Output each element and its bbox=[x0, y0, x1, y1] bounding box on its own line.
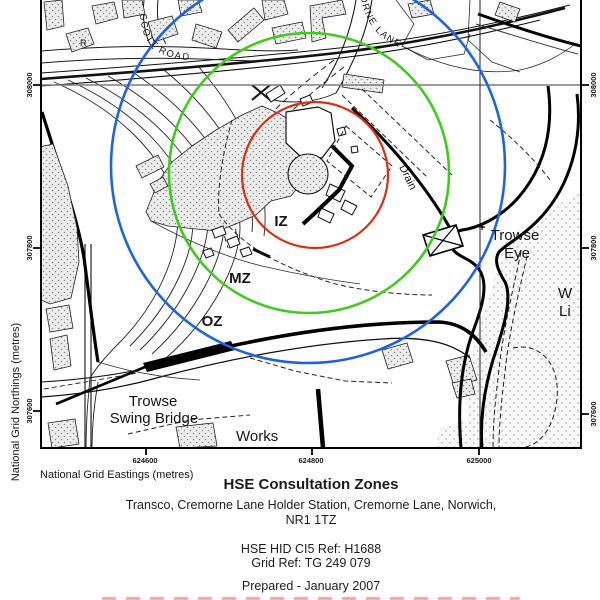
x-tick-624600: 624600 bbox=[132, 456, 157, 465]
li-label: Li bbox=[559, 303, 571, 320]
swing-bridge-label-1: Trowse bbox=[129, 393, 178, 410]
swing-bridge-label-2: Swing Bridge bbox=[110, 410, 198, 427]
gas-holder bbox=[288, 154, 328, 194]
oz-label: OZ bbox=[202, 313, 223, 330]
x-tick-625000: 625000 bbox=[466, 456, 491, 465]
y-tick-307600-left: 307600 bbox=[25, 398, 34, 423]
hse-reference: HSE HID CI5 Ref: H1688 bbox=[11, 542, 600, 556]
r-label: R bbox=[80, 38, 87, 48]
trowse-eye-label-1: Trowse bbox=[491, 227, 540, 244]
page-title: HSE Consultation Zones bbox=[11, 476, 600, 493]
w-label: W bbox=[558, 285, 573, 302]
y-tick-308000-left: 308000 bbox=[25, 72, 34, 97]
works-label: Works bbox=[236, 428, 278, 445]
y-axis-label: National Grid Northings (metres) bbox=[10, 323, 22, 481]
map-content bbox=[35, 0, 581, 448]
y-tick-308000-right: 308000 bbox=[589, 72, 598, 97]
iz-label: IZ bbox=[274, 213, 287, 230]
y-tick-307800-left: 307800 bbox=[25, 235, 34, 260]
y-tick-307800-right: 307800 bbox=[589, 235, 598, 260]
y-tick-307600-right: 307600 bbox=[589, 401, 598, 426]
prepared-date: Prepared - January 2007 bbox=[11, 579, 600, 593]
trowse-eye-label-2: Eye bbox=[504, 245, 530, 262]
x-tick-624800: 624800 bbox=[298, 456, 323, 465]
hse-consultation-zones-page: 308000 307800 307600 308000 307800 30760… bbox=[0, 0, 600, 600]
site-address-line-2: NR1 1TZ bbox=[11, 513, 600, 527]
mz-label: MZ bbox=[229, 270, 251, 287]
grid-reference: Grid Ref: TG 249 079 bbox=[11, 556, 600, 570]
site-address-line-1: Transco, Cremorne Lane Holder Station, C… bbox=[11, 498, 600, 512]
